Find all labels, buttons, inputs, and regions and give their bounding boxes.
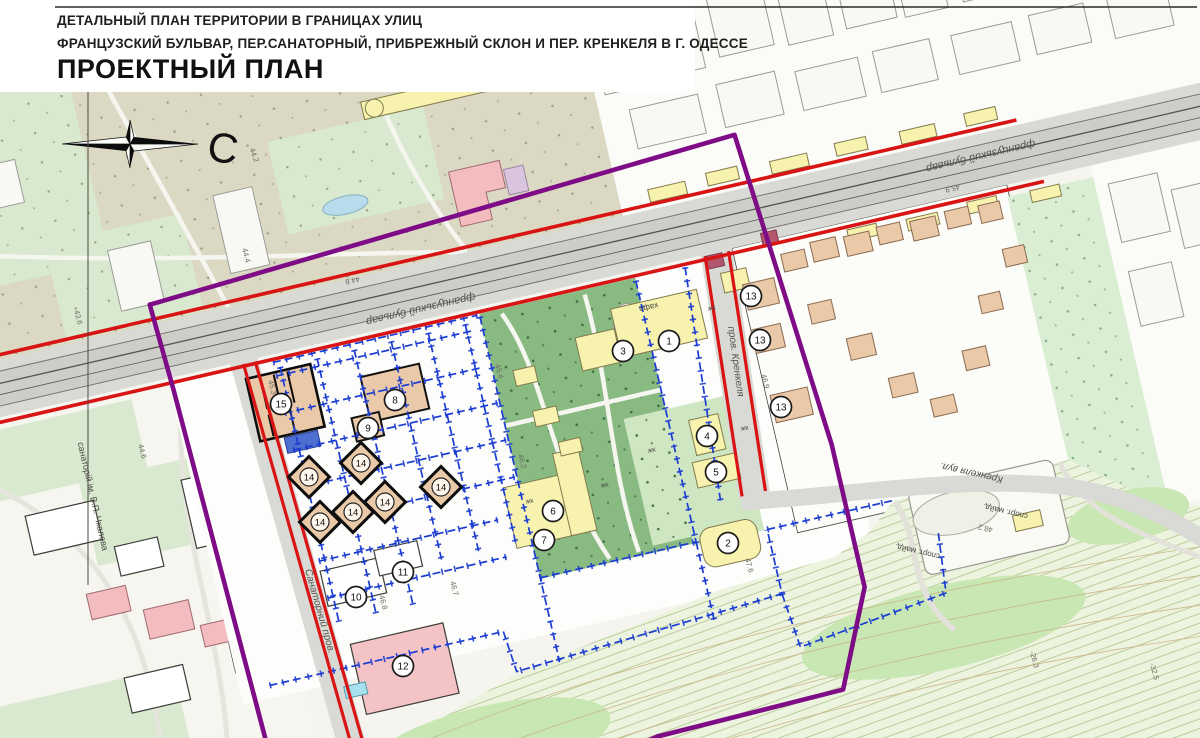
plan-marker-circle: 6 — [543, 501, 564, 522]
map-svg: французький бульварфранцузький бульварСа… — [0, 0, 1200, 738]
detailed-plan-map: французький бульварфранцузький бульварСа… — [0, 0, 1200, 738]
plan-marker-circle: 12 — [393, 656, 414, 677]
svg-text:12: 12 — [397, 662, 409, 673]
svg-text:6: 6 — [550, 507, 556, 518]
plan-marker-circle: 13 — [750, 330, 771, 351]
svg-text:14: 14 — [436, 482, 447, 493]
plan-marker-circle: 7 — [534, 530, 555, 551]
svg-text:14: 14 — [348, 507, 359, 518]
plan-title-line2: ФРАНЦУЗСКИЙ БУЛЬВАР, ПЕР.САНАТОРНЫЙ, ПРИ… — [57, 36, 748, 51]
svg-text:3: 3 — [620, 347, 626, 358]
svg-text:14: 14 — [315, 517, 326, 528]
plan-marker-circle: 15 — [271, 394, 292, 415]
plan-marker-circle: 5 — [706, 462, 727, 483]
svg-text:13: 13 — [745, 292, 757, 303]
svg-text:14: 14 — [304, 472, 315, 483]
plan-marker-circle: 1 — [659, 331, 680, 352]
plan-marker-circle: 3 — [613, 341, 634, 362]
plan-marker-circle: 11 — [393, 562, 414, 583]
plan-marker-circle: 10 — [346, 587, 367, 608]
svg-text:15: 15 — [275, 400, 287, 411]
plan-marker-circle: 13 — [771, 397, 792, 418]
plan-marker-circle: 2 — [718, 533, 739, 554]
svg-text:13: 13 — [754, 336, 766, 347]
svg-text:14: 14 — [380, 497, 391, 508]
svg-text:14: 14 — [356, 458, 367, 469]
plan-marker-circle: 9 — [358, 418, 379, 439]
plan-marker-circle: 8 — [385, 390, 406, 411]
svg-text:13: 13 — [775, 403, 787, 414]
svg-text:11: 11 — [398, 568, 409, 579]
svg-text:4: 4 — [704, 432, 710, 443]
plan-title-line3: ПРОЕКТНЫЙ ПЛАН — [57, 53, 324, 84]
svg-text:7: 7 — [541, 536, 547, 547]
svg-text:9: 9 — [365, 424, 371, 435]
svg-text:10: 10 — [350, 593, 362, 604]
svg-text:8: 8 — [392, 396, 398, 407]
svg-text:5: 5 — [713, 468, 719, 479]
plan-marker-circle: 4 — [697, 426, 718, 447]
plan-marker-circle: 13 — [741, 286, 762, 307]
svg-text:1: 1 — [666, 337, 672, 348]
svg-text:2: 2 — [725, 539, 731, 550]
plan-title-line1: ДЕТАЛЬНЫЙ ПЛАН ТЕРРИТОРИИ В ГРАНИЦАХ УЛИ… — [57, 13, 422, 28]
